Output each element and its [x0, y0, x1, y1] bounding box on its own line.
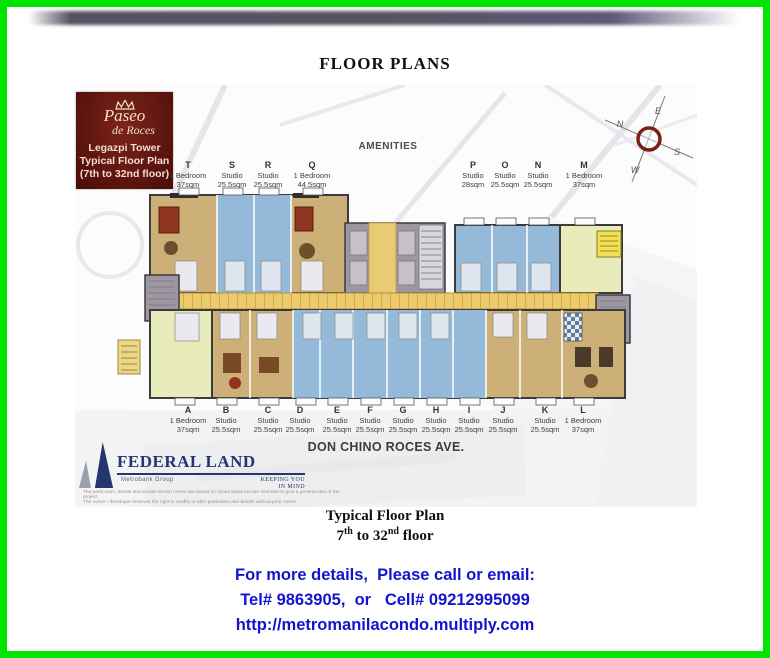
brand-name-line2: de Roces — [94, 124, 173, 137]
contact-url: http://metromanilacondo.multiply.com — [7, 613, 763, 638]
flyer-page: FLOOR PLANS 09212995099 — [0, 0, 770, 658]
compass-n: N — [617, 119, 624, 129]
unit-id: L — [553, 405, 613, 416]
tagline-line1: KEEPING YOU — [209, 477, 305, 484]
unit-label-m: M 1 Bedroom 37sqm — [554, 160, 614, 189]
unit-id: Q — [282, 160, 342, 171]
caption-floor-range: 7th to 32nd floor — [7, 526, 763, 545]
unit-area: 37sqm — [554, 180, 614, 189]
plan-core-center — [345, 223, 445, 293]
unit-area: 44.5sqm — [282, 180, 342, 189]
contact-block: For more details, Please call or email: … — [7, 563, 763, 638]
unit-area: 37sqm — [553, 425, 613, 434]
contact-line1: For more details, Please call or email: — [7, 563, 763, 588]
compass-e: E — [655, 106, 662, 116]
amenities-label: AMENITIES — [338, 141, 438, 152]
plan-units-bottom — [212, 310, 625, 398]
unit-type: 1 Bedroom — [282, 171, 342, 180]
floor-from-sup: th — [344, 526, 353, 537]
compass-w: W — [631, 165, 641, 175]
brand-name-line1: Paseo — [76, 107, 173, 124]
caption-title: Typical Floor Plan — [7, 508, 763, 525]
federal-land-logo: FEDERAL LAND Metrobank Group KEEPING YOU… — [79, 441, 349, 505]
unit-id: M — [554, 160, 614, 171]
plan-unit-a — [118, 310, 212, 398]
plan-units-top-right — [455, 225, 622, 293]
unit-type: 1 Bedroom — [553, 416, 613, 425]
floor-from: 7 — [336, 528, 344, 544]
developer-tagline: KEEPING YOU IN MIND — [209, 477, 305, 491]
logo-underline — [117, 473, 305, 475]
developer-name: FEDERAL LAND — [117, 452, 256, 472]
unit-type: 1 Bedroom — [554, 171, 614, 180]
unit-label-q: Q 1 Bedroom 44.5sqm — [282, 160, 342, 189]
unit-label-l: L 1 Bedroom 37sqm — [553, 405, 613, 434]
disclaimer-text: The particulars, details and visuals sho… — [83, 490, 347, 504]
flyer-image: N E S W — [75, 85, 697, 507]
tower-name: Legazpi Tower — [76, 142, 173, 155]
plan-corridor — [161, 293, 598, 309]
compass-s: S — [674, 147, 680, 157]
contact-line2: Tel# 9863905, or Cell# 09212995099 — [7, 588, 763, 613]
developer-group: Metrobank Group — [121, 477, 174, 483]
logo-sail-navy-icon — [91, 442, 117, 488]
disclaimer-line2: The owner / developer reserves the right… — [83, 500, 347, 505]
floor-mid: to 32 — [353, 528, 388, 544]
page-title: FLOOR PLANS — [7, 54, 763, 74]
top-shadow-bar — [28, 11, 740, 25]
floor-post: floor — [399, 528, 434, 544]
disclaimer-line1: The particulars, details and visuals sho… — [83, 490, 347, 500]
floor-to-sup: nd — [388, 526, 399, 537]
